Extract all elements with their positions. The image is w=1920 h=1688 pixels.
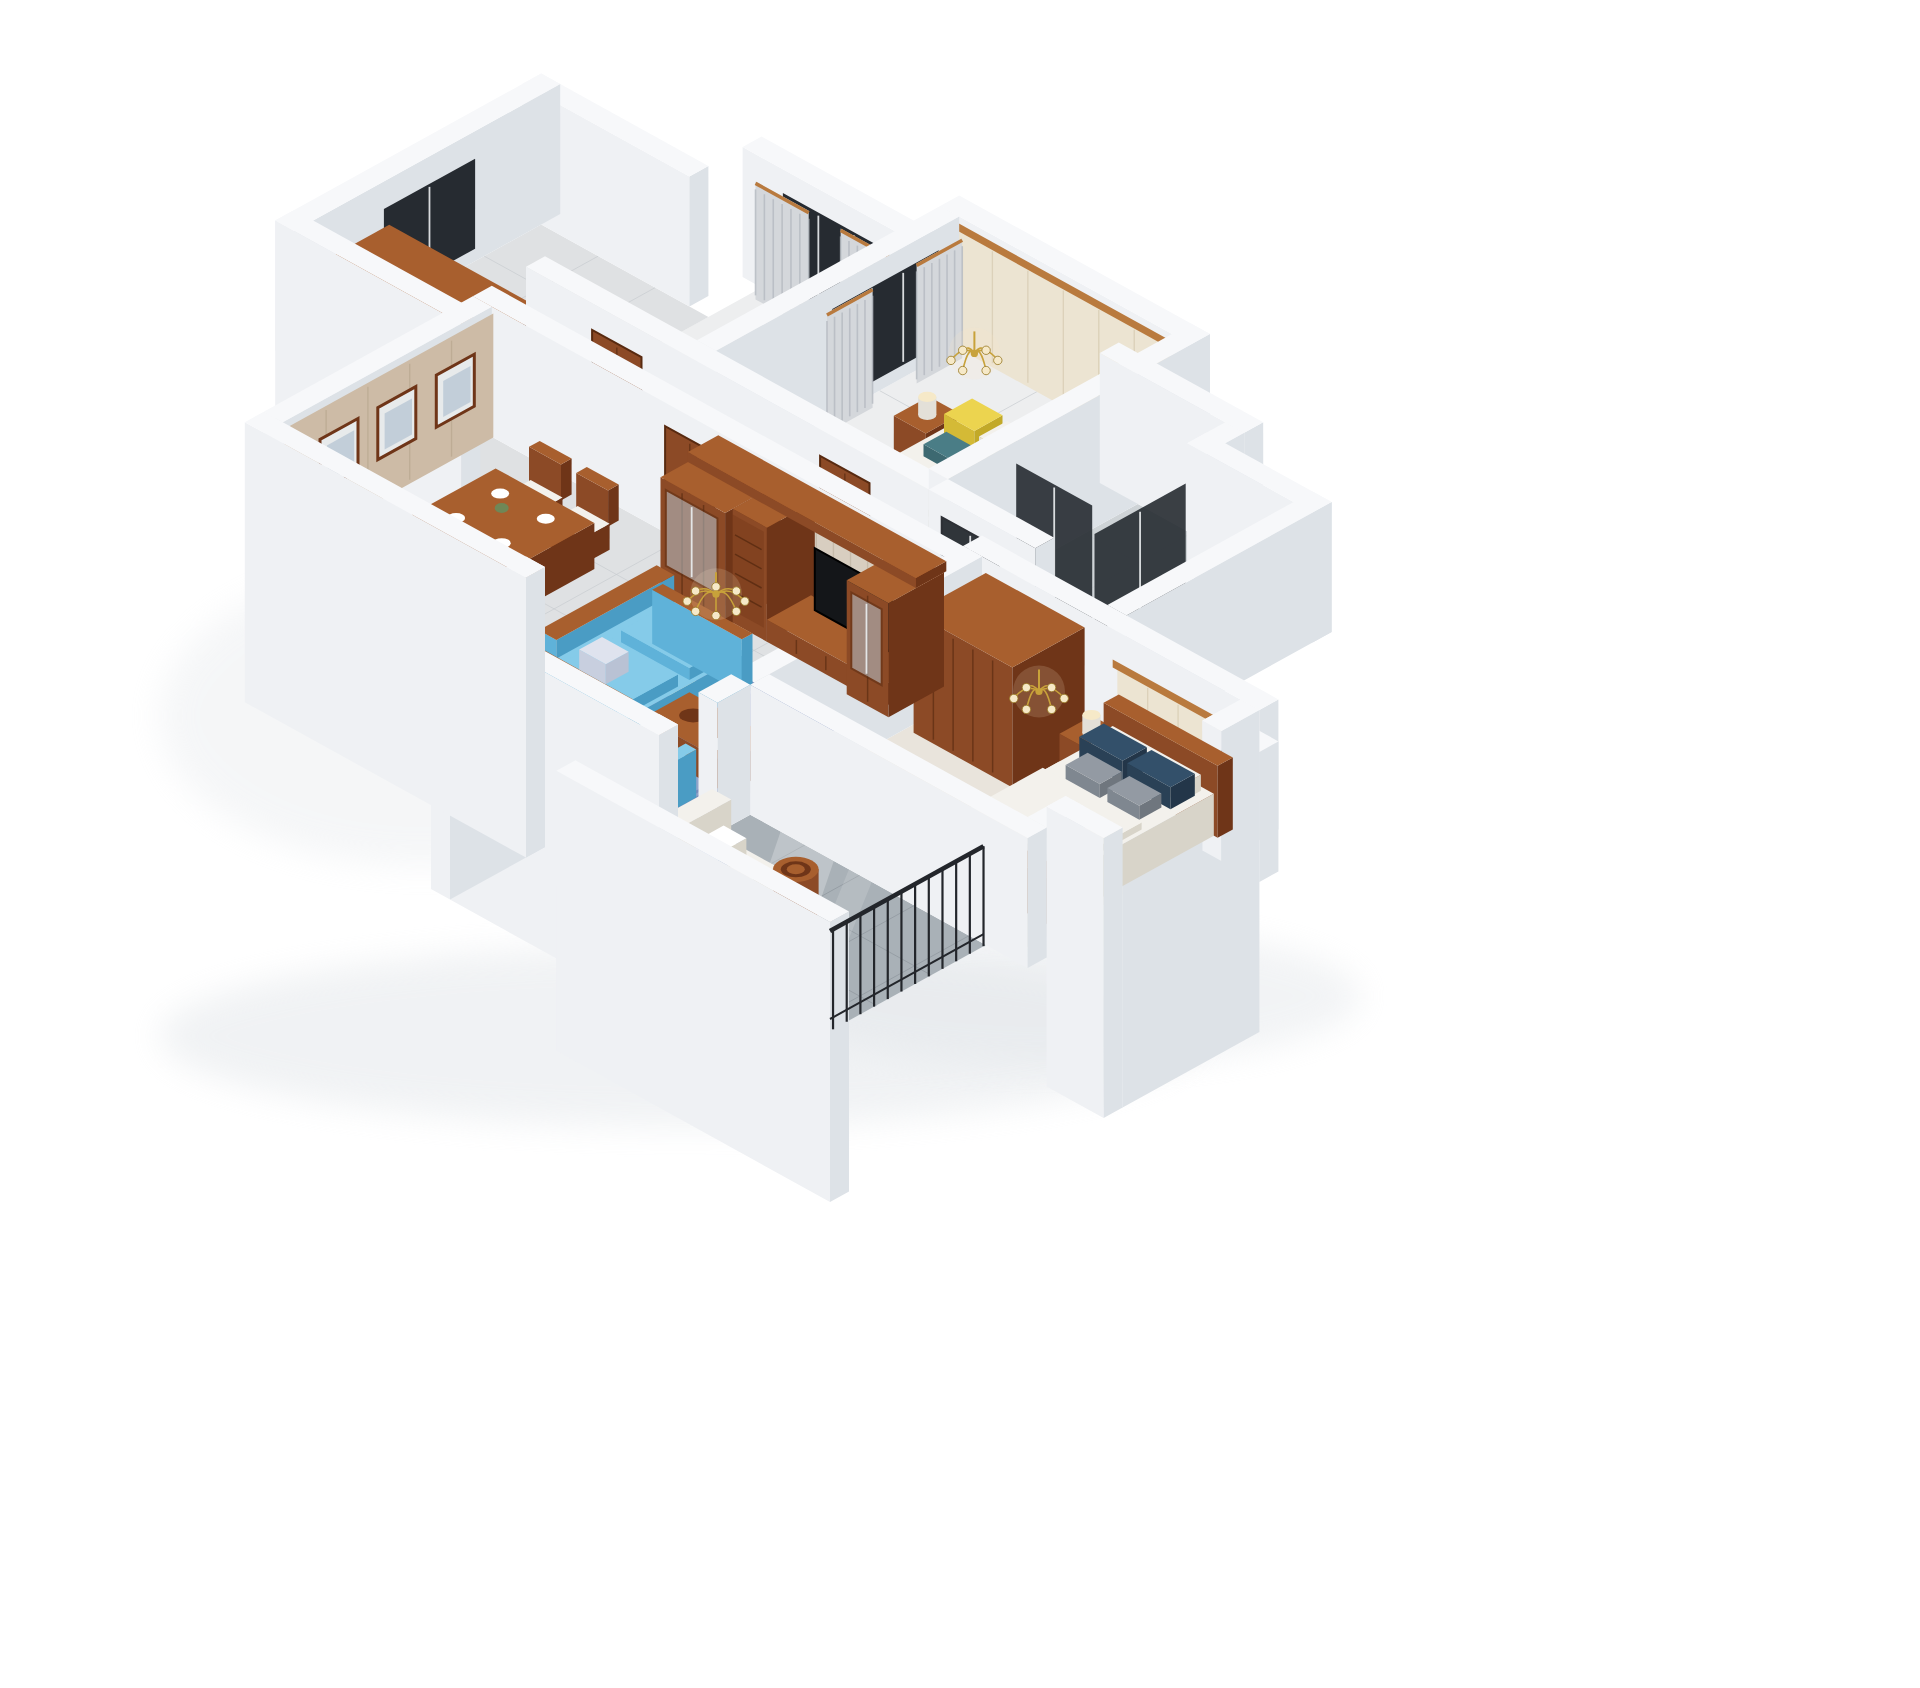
tv-cabinet-right-glass-doors — [851, 592, 881, 685]
balcony-stool-ring-inner — [787, 864, 805, 874]
bedroom2-curtain-right — [827, 288, 873, 433]
floorplan-render-canvas — [40, 16, 1920, 1688]
scene-root — [160, 74, 1360, 1202]
dining-plate-2 — [537, 514, 555, 524]
wall-bay-south — [1047, 796, 1123, 1118]
dining-centerpiece-flowers — [495, 503, 509, 513]
dining-plate-1 — [491, 489, 509, 499]
bedroom2-table-lamp — [918, 392, 936, 420]
apartment-3d-floorplan: Isometric 3D cutaway render of a furnish… — [40, 16, 1920, 1688]
